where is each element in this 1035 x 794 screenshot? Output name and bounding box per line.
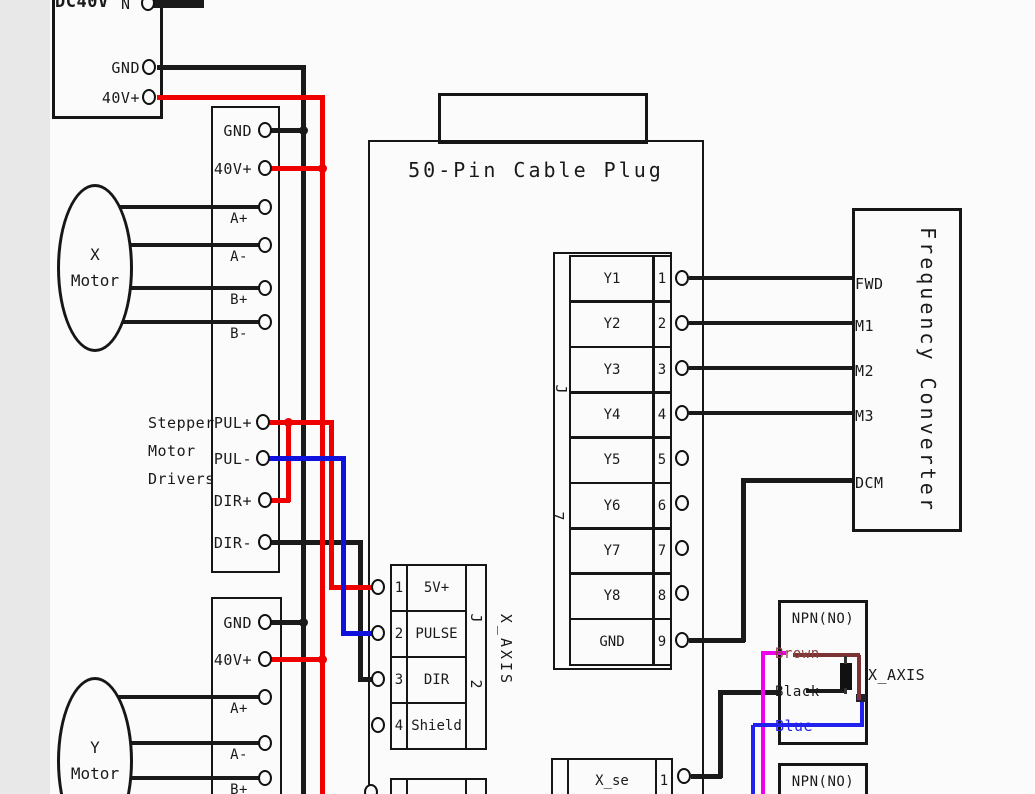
xaxis-row-label: Shield <box>406 702 467 750</box>
terminal-j7-6 <box>675 495 689 511</box>
sensor1-brown-label: Brown <box>775 646 820 662</box>
wire-gnd-bus <box>301 65 306 794</box>
j7-row-label: Y3 <box>569 346 655 394</box>
d1-a-minus-label: A- <box>226 249 252 265</box>
sensor1-blue-riser <box>860 700 864 726</box>
terminal-xaxis-1 <box>371 579 385 595</box>
converter-title: Frequency Converter <box>916 227 940 513</box>
j7-row-label: Y2 <box>569 300 655 348</box>
y-motor-label-line2: Motor <box>71 761 119 787</box>
power-supply-title: DC40V <box>55 0 109 12</box>
block2-bracket <box>465 778 487 794</box>
j7-row-label: Y6 <box>569 482 655 530</box>
j7-row-num: 3 <box>652 346 672 394</box>
wire-y2-m1 <box>689 321 852 325</box>
converter-pin-m1: M1 <box>855 317 874 335</box>
d2-40v-label: 40V+ <box>212 651 252 669</box>
wiring-diagram: Y1 1 Y2 2 Y3 3 Y4 4 Y5 5 Y6 6 Y7 7 Y8 8 … <box>0 0 1035 794</box>
terminal-d1-40v <box>258 160 272 176</box>
x-motor-label-line2: Motor <box>71 268 119 294</box>
wire-pul-minus-v <box>341 456 346 635</box>
wire-pulse-to-pin2 <box>341 631 372 636</box>
wire-y4-m3 <box>689 411 852 415</box>
j7-letter-j: J <box>552 384 570 393</box>
power-n-label: N <box>121 0 131 13</box>
wire-dir-minus-h <box>270 540 362 545</box>
stepper-label-line2: Motor <box>148 442 196 460</box>
j7-row-num: 8 <box>652 572 672 620</box>
sensor1-black-label: Black <box>775 684 820 700</box>
wire-dir-minus-v <box>358 540 363 681</box>
xaxis-row-label: PULSE <box>406 610 467 658</box>
terminal-power-40v <box>142 89 156 105</box>
wire-dcm-h <box>741 478 852 483</box>
d1-dir-minus-label: DIR- <box>210 534 252 552</box>
d1-gnd-label: GND <box>212 122 252 140</box>
d1-b-plus-label: B+ <box>226 292 252 308</box>
stepper-label-line3: Drivers <box>148 470 215 488</box>
wire-sensor-blue-v <box>751 725 755 794</box>
sensor1-title: NPN(NO) <box>778 611 868 627</box>
y-motor-label-line1: Y <box>90 735 100 761</box>
d1-dir-plus-label: DIR+ <box>210 492 252 510</box>
d1-b-minus-label: B- <box>226 326 252 342</box>
terminal-j7-1 <box>675 270 689 286</box>
wire-40v-bus <box>320 95 325 794</box>
junction-40v-1 <box>318 164 327 173</box>
wire-pul-plus-v <box>329 420 334 589</box>
converter-pin-fwd: FWD <box>855 275 884 293</box>
wire-pin9-h <box>689 638 745 643</box>
j7-row-num: 1 <box>652 255 672 303</box>
d2-gnd-label: GND <box>212 614 252 632</box>
terminal-d2-gnd <box>258 614 272 630</box>
xaxis-block-title: X_AXIS <box>497 614 515 686</box>
terminal-block2-1 <box>364 784 378 794</box>
wire-driver2-40v <box>270 657 324 662</box>
j7-letter-7: 7 <box>549 511 567 520</box>
wire-dir-plus-v <box>286 422 291 502</box>
j7-row-label: Y8 <box>569 572 655 620</box>
junction-5v <box>284 418 293 427</box>
j7-row-num: 7 <box>652 527 672 575</box>
j7-row-label: Y5 <box>569 436 655 484</box>
converter-pin-m3: M3 <box>855 407 874 425</box>
terminal-d2-40v <box>258 651 272 667</box>
j7-row-num: 5 <box>652 436 672 484</box>
junction-gnd-1 <box>299 126 308 135</box>
wire-y3-m2 <box>689 366 852 370</box>
wire-dcm-v <box>741 480 746 642</box>
wire-pul-minus-h <box>268 456 345 461</box>
d1-40v-label: 40V+ <box>212 160 252 178</box>
wire-5v-to-pin1 <box>329 585 372 590</box>
converter-pin-m2: M2 <box>855 362 874 380</box>
sensor1-brown-drop <box>857 655 861 700</box>
xse-row-num: 1 <box>655 758 673 794</box>
j7-row-label: GND <box>569 618 655 666</box>
d1-pul-minus-label: PUL- <box>210 450 252 468</box>
terminal-d2-a-minus <box>258 735 272 751</box>
wire-pul-plus-h <box>268 420 333 425</box>
terminal-d1-a-plus <box>258 199 272 215</box>
terminal-d1-gnd <box>258 122 272 138</box>
xaxis-letter-j: J <box>467 613 485 622</box>
terminal-j7-8 <box>675 585 689 601</box>
converter-pin-dcm: DCM <box>855 474 884 492</box>
terminal-j7-2 <box>675 315 689 331</box>
terminal-d1-b-minus <box>258 314 272 330</box>
block2-row-label: 5V+ <box>406 778 467 794</box>
d1-a-plus-label: A+ <box>226 211 252 227</box>
terminal-d1-pul-minus <box>256 450 270 466</box>
sensor1-resistor-tick-top <box>844 656 847 664</box>
terminal-power-gnd <box>142 59 156 75</box>
wire-xse-to-black <box>718 690 780 695</box>
plug-tab-box <box>438 93 648 144</box>
j7-row-num: 9 <box>652 618 672 666</box>
wire-driver1-40v <box>270 166 324 171</box>
junction-40v-2 <box>318 655 327 664</box>
d2-a-plus-label: A+ <box>226 701 252 717</box>
terminal-j7-5 <box>675 450 689 466</box>
j7-row-num: 4 <box>652 391 672 439</box>
terminal-j7-9 <box>675 632 689 648</box>
sensor1-blue-label: Blue <box>775 717 813 735</box>
wire-ymotor-a-plus <box>98 695 260 699</box>
plug-title: 50-Pin Cable Plug <box>368 158 704 182</box>
xaxis-bracket <box>465 564 487 750</box>
xaxis-row-label: 5V+ <box>406 564 467 612</box>
junction-gnd-2 <box>299 618 308 627</box>
wire-ac-n <box>152 0 204 8</box>
terminal-d2-b-plus <box>258 770 272 786</box>
terminal-d1-dir-plus <box>258 492 272 508</box>
terminal-d1-dir-minus <box>258 534 272 550</box>
terminal-d2-a-plus <box>258 689 272 705</box>
j7-row-num: 2 <box>652 300 672 348</box>
sensor1-load-resistor <box>840 663 852 690</box>
page-margin-band <box>0 0 50 794</box>
d2-b-plus-label: B+ <box>226 782 252 794</box>
xaxis-row-label: DIR <box>406 656 467 704</box>
sensor2-title: NPN(NO) <box>778 774 868 790</box>
wire-power-40v <box>157 95 324 100</box>
j7-row-label: Y7 <box>569 527 655 575</box>
j7-row-num: 6 <box>652 482 672 530</box>
j7-row-label: Y4 <box>569 391 655 439</box>
terminal-xse-1 <box>677 768 691 784</box>
terminal-xaxis-4 <box>371 717 385 733</box>
terminal-d1-b-plus <box>258 280 272 296</box>
xaxis-letter-2: 2 <box>467 679 485 688</box>
wire-xmotor-a-plus <box>98 205 260 209</box>
j7-row-label: Y1 <box>569 255 655 303</box>
power-gnd-label: GND <box>105 59 140 77</box>
terminal-xaxis-3 <box>371 671 385 687</box>
d1-pul-plus-label: PUL+ <box>210 414 252 432</box>
terminal-xaxis-2 <box>371 625 385 641</box>
stepper-label-line1: Stepper <box>148 414 215 432</box>
x-motor: X Motor <box>57 184 133 352</box>
x-motor-label-line1: X <box>90 242 100 268</box>
wire-xse-v <box>718 692 723 778</box>
xse-row-label: X_se <box>567 758 657 794</box>
terminal-d1-a-minus <box>258 237 272 253</box>
power-40v-label: 40V+ <box>100 89 140 107</box>
wire-y1-fwd <box>689 276 852 280</box>
terminal-j7-4 <box>675 405 689 421</box>
wire-power-gnd <box>157 65 303 70</box>
terminal-d1-pul-plus <box>256 414 270 430</box>
sensor1-axis-label: X_AXIS <box>868 666 925 684</box>
d2-a-minus-label: A- <box>226 747 252 763</box>
terminal-j7-3 <box>675 360 689 376</box>
sensor1-resistor-tick-bottom <box>844 688 847 694</box>
terminal-j7-7 <box>675 540 689 556</box>
